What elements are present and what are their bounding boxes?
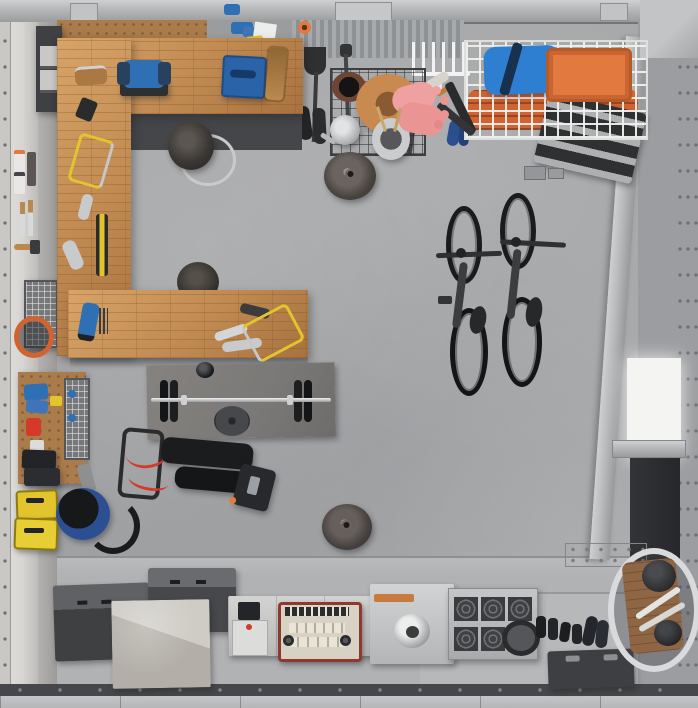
spray-can-2 — [14, 172, 25, 194]
floor-weight-plate — [502, 620, 540, 656]
chisel-2 — [28, 200, 33, 236]
drill-bits — [99, 308, 108, 334]
black-case-1 — [22, 449, 57, 469]
glove-finger-3 — [440, 110, 449, 119]
blue-bit-2 — [68, 414, 76, 422]
radio-knob-left — [283, 635, 294, 646]
glove-finger-1 — [432, 86, 441, 95]
bench-pad-1 — [160, 436, 254, 470]
case-handle — [230, 69, 256, 78]
spirit-level — [96, 214, 108, 276]
lamp-hub-2 — [341, 520, 352, 530]
glove-finger-4 — [434, 120, 443, 129]
yellow-part — [50, 396, 62, 406]
grinder-wheel-left — [117, 62, 130, 85]
tape-roll-orange — [298, 21, 311, 34]
oil-can — [26, 418, 41, 436]
garage-door-panel — [0, 696, 698, 708]
orange-crate — [546, 48, 632, 102]
silver-machine — [370, 584, 454, 664]
mallet-head — [30, 240, 40, 254]
dumbbell-2 — [548, 618, 558, 640]
speaker-grille-2 — [481, 597, 505, 621]
floor-anchor-plate-1 — [524, 166, 546, 180]
grinder-wheel-right — [158, 62, 171, 85]
case-handle-1 — [566, 655, 580, 661]
beam-hinge-left — [70, 3, 98, 21]
pendant-lamp-2 — [322, 504, 372, 550]
cabinet-drawer-2 — [40, 70, 58, 93]
right-corner-plate — [640, 0, 698, 58]
box2-slot-2 — [196, 580, 206, 584]
black-case-2 — [24, 468, 60, 486]
weight-bench — [117, 417, 288, 515]
left-wall-trim — [0, 22, 11, 708]
small-weight-disc — [196, 362, 214, 378]
red-button — [246, 624, 252, 630]
spray-can-1 — [14, 150, 25, 174]
bike-2 — [494, 185, 558, 380]
bike2-stem — [511, 237, 521, 247]
radio-keys-row-1 — [289, 623, 345, 633]
radio-tuner-row — [285, 607, 349, 616]
hose-coil — [14, 316, 54, 358]
glove-finger-2 — [440, 96, 449, 105]
blue-pack-1 — [23, 383, 48, 401]
dumbbell-4 — [572, 624, 582, 644]
garage-room-render — [0, 0, 698, 708]
blue-bit-1 — [68, 390, 76, 398]
barbell-collar-l — [181, 395, 187, 405]
black-knob-box — [238, 602, 260, 620]
yellow-case-1 — [15, 489, 58, 520]
hand-plane — [74, 65, 107, 86]
beam-hinge-right — [600, 3, 628, 21]
case-latch-2 — [24, 528, 44, 533]
shop-vac — [56, 488, 110, 540]
tape-measure — [224, 4, 240, 15]
radio-keys-row-2 — [289, 637, 345, 647]
radio-knob-right — [340, 635, 351, 646]
bike-1 — [438, 200, 502, 390]
chisel-1 — [20, 202, 25, 236]
box1-slot-1 — [77, 601, 87, 605]
right-bracket-upper — [612, 440, 686, 458]
barbell-bar — [151, 398, 331, 402]
cylinder-port — [406, 626, 419, 638]
case-latch-1 — [26, 498, 44, 503]
cabinet-drawer-1 — [40, 46, 58, 69]
vintage-radio — [278, 602, 362, 662]
bike1-pedal — [438, 296, 452, 304]
speaker-grille-1 — [454, 597, 478, 621]
spray-can-3 — [27, 152, 36, 186]
copper-strip — [374, 594, 414, 602]
corner-cart — [608, 542, 698, 686]
speaker-grille-3 — [508, 597, 532, 621]
concrete-block — [111, 599, 211, 689]
helmet-1 — [642, 560, 676, 592]
bike1-stem — [456, 248, 466, 258]
yellow-case-2 — [13, 517, 58, 551]
blue-pack-2 — [25, 399, 48, 414]
helmet-2 — [654, 620, 682, 646]
speaker-grille-4 — [454, 627, 478, 651]
box2-slot-1 — [170, 580, 180, 584]
barbell-collar-r — [287, 395, 293, 405]
box1-slot-2 — [101, 600, 111, 604]
shovel-head — [304, 47, 326, 75]
beam-center-plate — [335, 2, 392, 21]
dumbbell-1 — [536, 616, 546, 638]
lamp-hub-1 — [345, 169, 356, 179]
stool-1 — [168, 122, 214, 170]
pendant-lamp-1 — [324, 152, 376, 200]
floor-anchor-plate-2 — [548, 168, 564, 179]
